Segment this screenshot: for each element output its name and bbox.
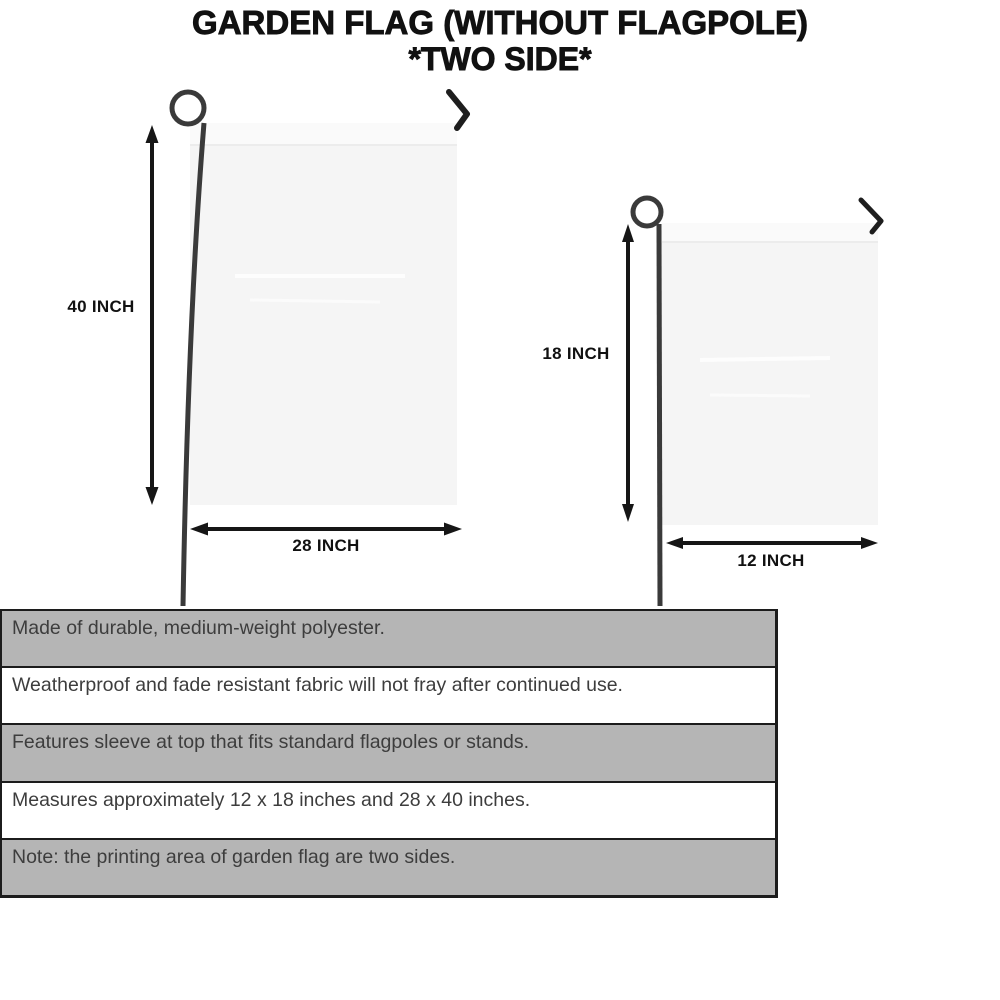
small-flag-wrinkle <box>710 395 810 396</box>
feature-row-weatherproof: Weatherproof and fade resistant fabric w… <box>2 666 775 723</box>
small-flag-wrinkle <box>700 358 830 360</box>
garden-flag-infographic: GARDEN FLAG (WITHOUT FLAGPOLE) *TWO SIDE… <box>0 0 1000 1000</box>
large-flag-group <box>146 92 468 606</box>
feature-row-sleeve: Features sleeve at top that fits standar… <box>2 723 775 780</box>
small-flag-group <box>622 198 881 606</box>
small-flag-height-arrow <box>622 224 634 522</box>
large-flag-width-label: 28 INCH <box>271 536 381 556</box>
feature-row-material: Made of durable, medium-weight polyester… <box>2 611 775 666</box>
small-flag-sleeve <box>662 223 878 241</box>
small-flagpole-loop-icon <box>633 198 661 226</box>
large-flagpole-loop-icon <box>172 92 204 124</box>
large-flag-wrinkle <box>250 300 380 302</box>
large-flag-sleeve <box>190 123 457 144</box>
large-flag-hook-icon <box>449 92 467 128</box>
small-flag-height-label: 18 INCH <box>521 344 631 364</box>
feature-table: Made of durable, medium-weight polyester… <box>0 609 778 898</box>
small-flag-width-label: 12 INCH <box>716 551 826 571</box>
large-flag-height-label: 40 INCH <box>46 297 156 317</box>
large-flag-width-arrow <box>190 523 462 536</box>
feature-row-measurements: Measures approximately 12 x 18 inches an… <box>2 781 775 838</box>
small-flag-fabric <box>662 223 878 525</box>
feature-row-note: Note: the printing area of garden flag a… <box>2 838 775 895</box>
small-flag-width-arrow <box>666 537 878 549</box>
large-flag-fabric <box>190 123 457 505</box>
small-flagpole <box>659 224 660 606</box>
